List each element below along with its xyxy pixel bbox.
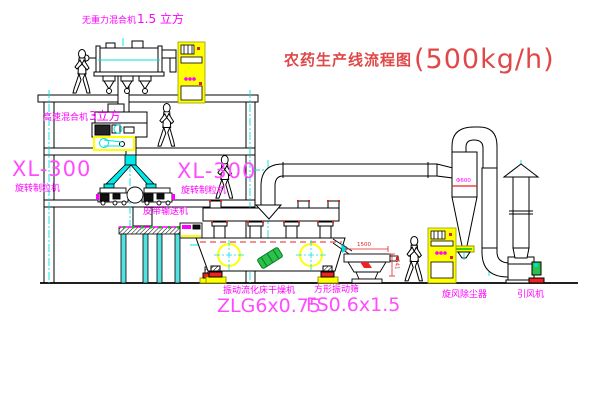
label-granulator-left-name: 旋转制粒机 [15, 185, 60, 194]
label-fan: 引风机 [517, 291, 544, 300]
label-screen-model: FS0.6x1.5 [306, 296, 400, 315]
label-high-speed-mixer: 高速混合机3立方 [43, 110, 121, 123]
label-gravity-mixer: 无重力混合机1.5 立方 [82, 13, 184, 26]
label-granulator-right-name: 旋转制粒机 [181, 187, 226, 196]
worker-ground [405, 237, 422, 281]
label-belt-conveyor: 皮带输送机 [143, 208, 188, 217]
rain-cap [504, 164, 538, 177]
cabinet-marking [184, 77, 196, 81]
cyclone-dust-collector [452, 127, 510, 277]
high-speed-mixer-name: 高速混合机 [43, 113, 88, 123]
dryer-connector-nozzles [211, 221, 334, 238]
gravity-mixer-name: 无重力混合机 [82, 16, 136, 26]
dim-screen-height: 541 [393, 259, 399, 270]
label-cyclone-size: Φ600 [456, 179, 471, 185]
cabinet-marking [435, 251, 447, 255]
control-cabinet-lower [428, 228, 456, 283]
label-granulator-right-model: XL-300 [177, 161, 256, 182]
bagging-spouts [103, 76, 151, 94]
control-cabinet-upper [178, 42, 205, 103]
mixer-drive-box [94, 137, 134, 150]
gravity-free-mixer [83, 41, 176, 115]
granulator-left [96, 188, 128, 205]
label-cyclone: 旋风除尘器 [442, 291, 487, 300]
title-capacity: (500kg/h) [414, 44, 555, 75]
granulator-right [142, 188, 175, 205]
worker-floor2 [158, 103, 175, 146]
conveyor-legs [121, 234, 180, 283]
pesticide-production-line-diagram: 农药生产线流程图 (500kg/h) 无重力混合机1.5 立方 高速混合机3立方… [0, 0, 600, 403]
title-text: 农药生产线流程图 [284, 49, 412, 70]
granulator-drum [127, 187, 143, 203]
label-granulator-left-model: XL-300 [12, 159, 91, 180]
gravity-mixer-volume: 1.5 立方 [137, 12, 184, 26]
dim-screen-length: 1500 [357, 243, 371, 249]
high-speed-mixer-volume: 3立方 [89, 109, 121, 123]
diagram-title: 农药生产线流程图 (500kg/h) [284, 44, 555, 75]
induced-draft-fan [504, 164, 544, 283]
